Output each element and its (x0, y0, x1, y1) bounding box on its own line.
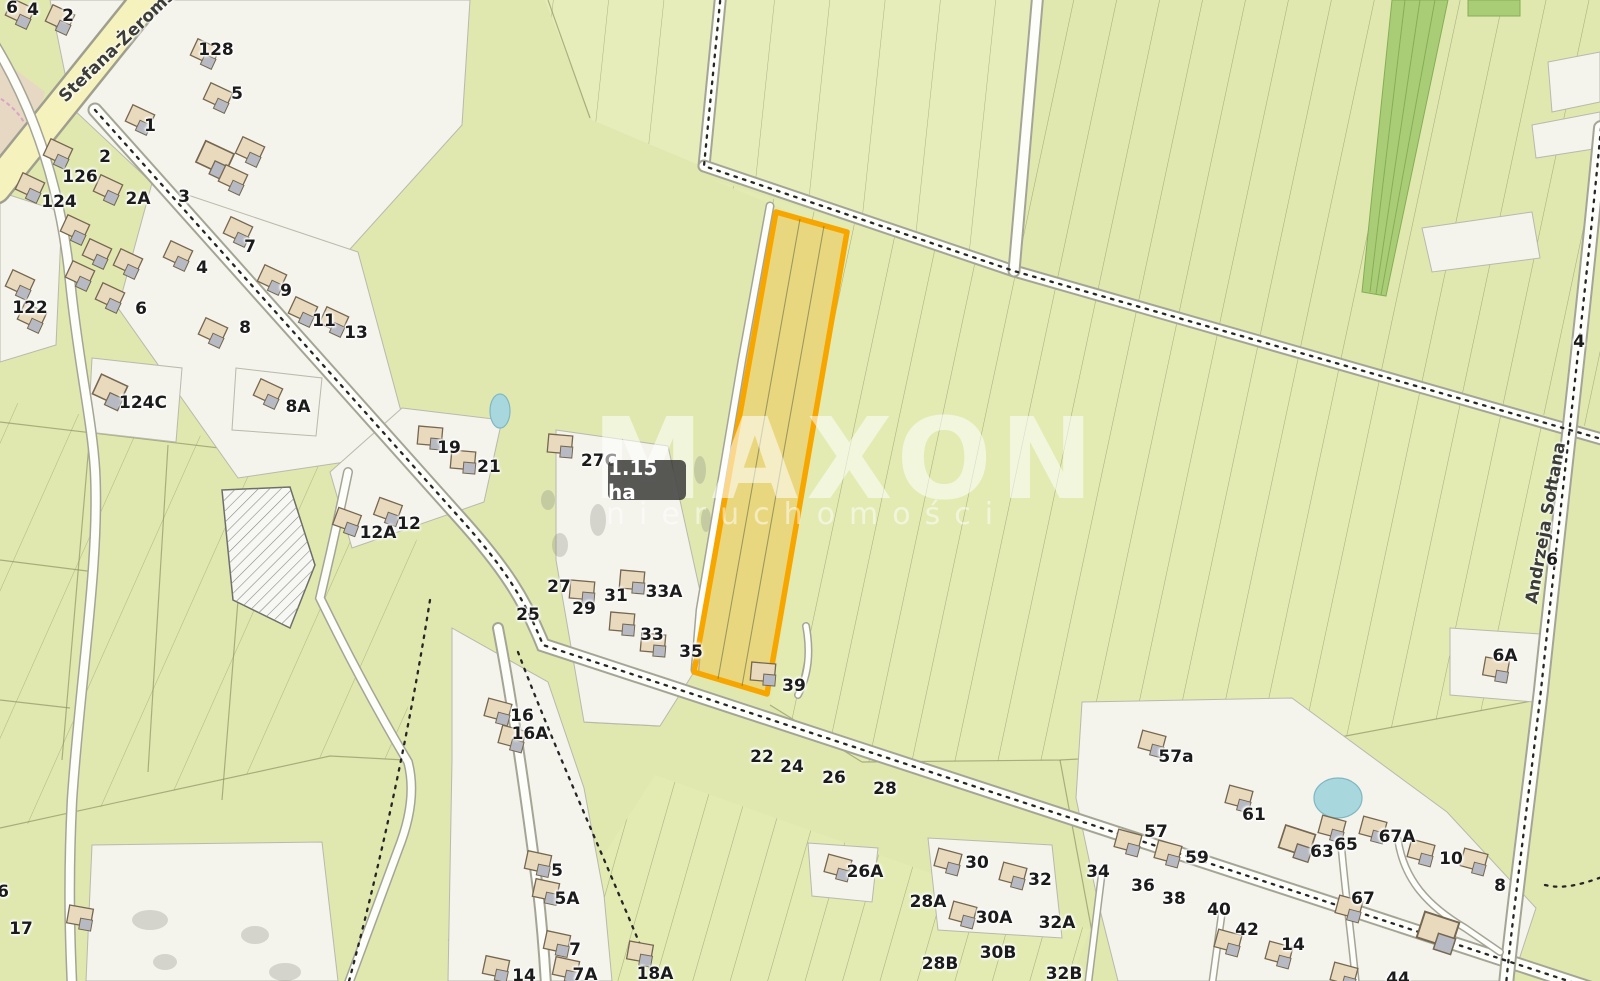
map-canvas[interactable]: 6421285121261242A3122749681113124C8A1921… (0, 0, 1600, 981)
area-badge: 1.15 ha (608, 460, 686, 500)
map-background (0, 0, 1600, 981)
